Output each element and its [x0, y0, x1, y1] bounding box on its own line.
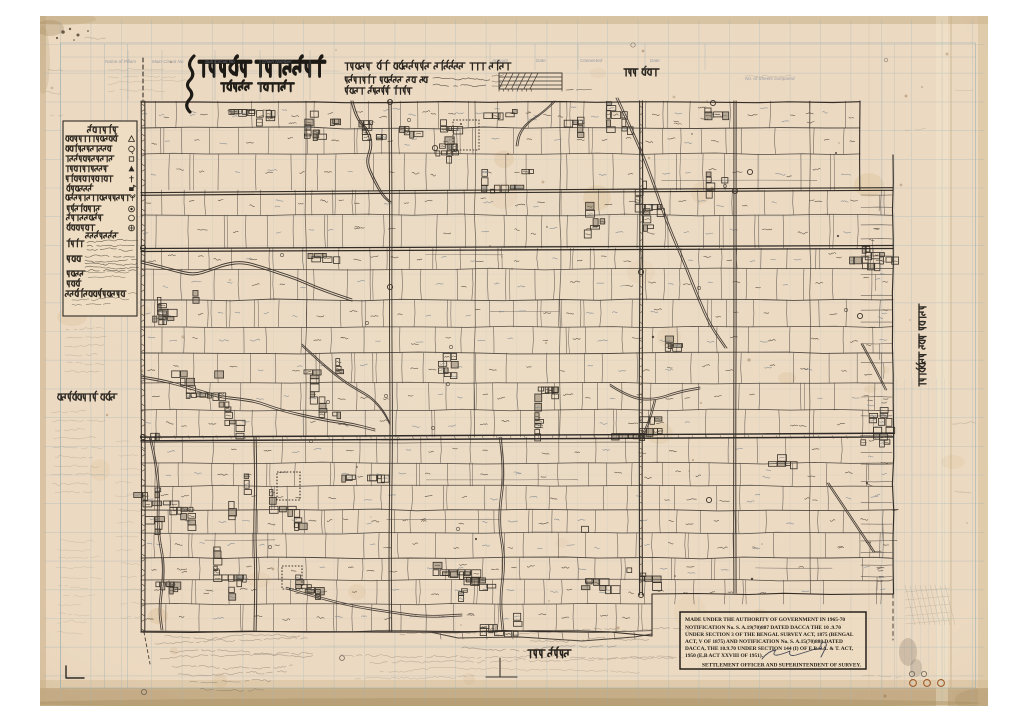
svg-text:DACCA, THE 10.9.70 UNDER SECT: DACCA, THE 10.9.70 UNDER SECTION 144 (I)…: [685, 645, 854, 652]
svg-text:UNDER SECTION 3 OF THE BENGAL: UNDER SECTION 3 OF THE BENGAL SURVEY ACT…: [685, 631, 854, 638]
svg-text:Main Circuit No: Main Circuit No: [152, 59, 184, 64]
svg-text:Chain Number: Chain Number: [262, 59, 292, 64]
svg-text:ACT, V OF 1875) AND NOTIFICA: ACT, V OF 1875) AND NOTIFICATION No. S. …: [685, 638, 843, 645]
svg-text:SETTLEMENT OFFICER AND SUPE: SETTLEMENT OFFICER AND SUPERINTENDENT OF…: [702, 663, 862, 669]
svg-text:Date: Date: [536, 58, 546, 63]
svg-text:1950 (E.B ACT XXVIII OF 1951): 1950 (E.B ACT XXVIII OF 1951).: [685, 652, 764, 659]
svg-text:NOTIFICATION No. S. A.19(70)8: NOTIFICATION No. S. A.19(70)887 DATED DA…: [685, 624, 841, 631]
svg-text:Date: Date: [650, 58, 660, 63]
svg-text:Connected: Connected: [580, 58, 603, 63]
svg-text:Name of Pillars: Name of Pillars: [105, 59, 137, 64]
svg-text:MADE UNDER THE AUTHORITY OF G: MADE UNDER THE AUTHORITY OF GOVERNMENT I…: [685, 617, 845, 623]
svg-text:Sub Circuit No: Sub Circuit No: [205, 59, 235, 64]
svg-text:Amount: Amount: [491, 58, 509, 63]
